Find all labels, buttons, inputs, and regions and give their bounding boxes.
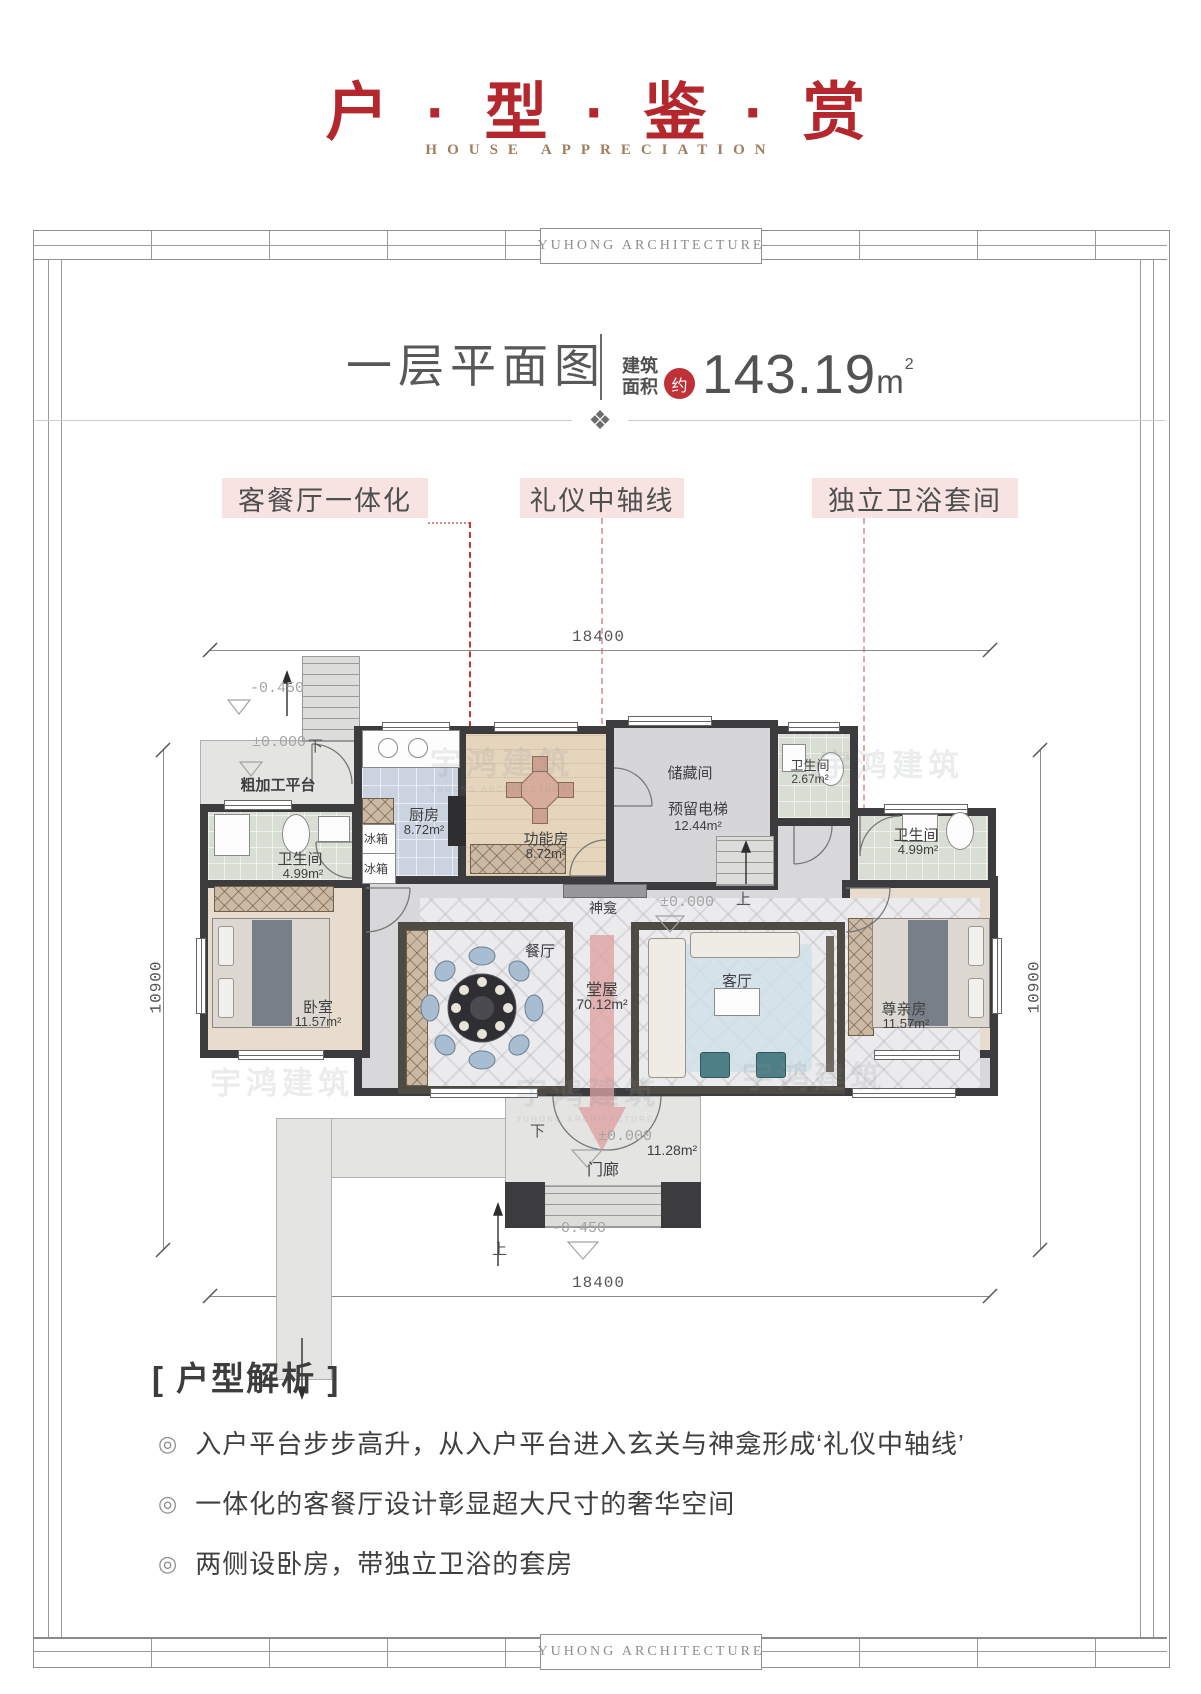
- label-shrine: 神龛: [589, 898, 617, 918]
- bullet-icon: ◎: [158, 1428, 177, 1460]
- watermark-3: 宇鸿建筑: [210, 1058, 354, 1103]
- area-elder: 11.57m²: [883, 1016, 930, 1031]
- label-elevator: 预留电梯: [668, 798, 728, 819]
- watermark-2: 宇鸿建筑: [820, 740, 964, 785]
- area-hall: 70.12m²: [576, 996, 627, 1012]
- mark-platform-zero: ±0.000: [252, 734, 306, 751]
- analysis-bullet-2: ◎ 一体化的客餐厅设计彰显超大尺寸的奢华空间: [158, 1488, 1058, 1520]
- mark-stairs-up: 上: [736, 888, 751, 909]
- area-bath-right: 4.99m²: [898, 842, 938, 857]
- mark-platform-down: 下: [308, 735, 323, 756]
- bullet-icon: ◎: [158, 1548, 177, 1580]
- watermark-5: 宇鸿建筑: [742, 1052, 886, 1097]
- mark-entry-up: 上: [492, 1238, 507, 1259]
- label-porch: 门廊: [587, 1156, 619, 1180]
- analysis-bullet-3: ◎ 两侧设卧房，带独立卫浴的套房: [158, 1548, 1058, 1580]
- mark-stairs-minus: -0.450: [250, 680, 304, 697]
- area-kitchen: 8.72m²: [404, 822, 444, 837]
- analysis-bullet-1: ◎ 入户平台步步高升，从入户平台进入玄关与神龛形成‘礼仪中轴线’: [158, 1428, 1058, 1460]
- area-porch: 11.28m²: [647, 1142, 697, 1158]
- label-living: 客厅: [722, 970, 752, 991]
- area-bedroom-left: 11.57m²: [295, 1014, 342, 1029]
- label-dining: 餐厅: [525, 940, 555, 961]
- watermark-1: 宇鸿建筑 YUHONG ARCHITECTURE: [430, 738, 574, 794]
- label-platform: 粗加工平台: [240, 774, 315, 795]
- label-storage: 储藏间: [667, 762, 712, 783]
- analysis-heading: [ 户型解析 ]: [152, 1352, 340, 1400]
- area-bath-left: 4.99m²: [283, 866, 323, 881]
- poster-page: 户 · 型 · 鉴 · 赏 HOUSE APPRECIATION YUHONG …: [0, 0, 1201, 1694]
- area-elevator: 12.44m²: [674, 818, 722, 833]
- mark-porch-zero: ±0.000: [598, 1128, 652, 1145]
- watermark-4: 宇鸿建筑 YUHONG ARCHITECTURE: [516, 1068, 660, 1124]
- bullet-icon: ◎: [158, 1488, 177, 1520]
- area-function: 8.72m²: [526, 846, 566, 861]
- label-fridge-2: 冰箱: [364, 860, 388, 877]
- label-fridge-1: 冰箱: [364, 830, 388, 847]
- mark-entry-minus: -0.450: [552, 1220, 606, 1237]
- mark-hall-zero: ±0.000: [660, 894, 714, 911]
